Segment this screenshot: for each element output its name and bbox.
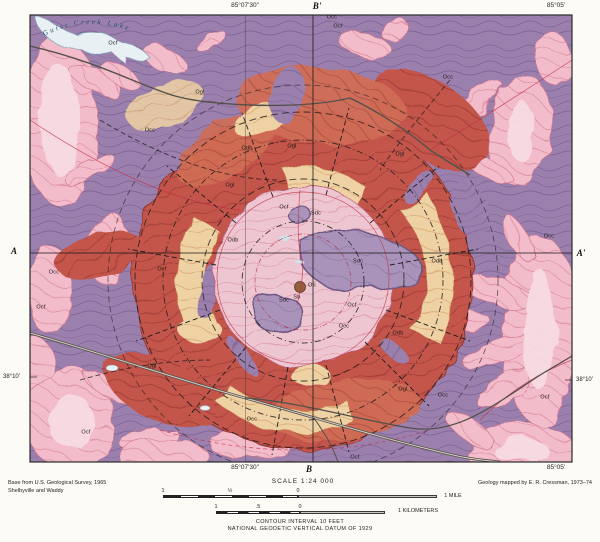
km-bar-zero-tick: 0 <box>298 504 301 510</box>
mile-bar-half-tick: ½ <box>228 488 233 494</box>
map-unit-label: Ocf <box>81 430 90 436</box>
map-unit-label: Oti <box>308 283 316 289</box>
km-bar-half-tick: .5 <box>256 504 261 510</box>
map-unit-label: Occ <box>247 417 257 423</box>
bottom-longitude-west: 85°07'30" <box>231 465 259 472</box>
map-unit-label: Occ <box>145 128 155 134</box>
top-longitude-west: 85°07'30" <box>231 3 259 10</box>
section-line-a-prime-label: A' <box>577 248 586 258</box>
map-unit-label: Occ <box>49 270 59 276</box>
map-unit-label: Ocf <box>157 267 166 273</box>
top-longitude-east: 85°05' <box>547 3 565 10</box>
km-bar-left-tick: 1 <box>214 504 217 510</box>
map-unit-label: Ocf <box>347 303 356 309</box>
base-credit-line1: Base from U.S. Geological Survey, 1965 <box>8 479 106 487</box>
mile-bar-segmented <box>163 495 298 498</box>
left-latitude: 38°10' <box>3 374 20 380</box>
map-unit-label: Ocf <box>350 455 359 461</box>
map-unit-label: Occ <box>339 324 349 330</box>
map-unit-label: Sdc <box>353 259 363 265</box>
mile-bar-zero-tick: 0 <box>296 488 299 494</box>
mile-bar-unit-label: 1 MILE <box>444 493 461 499</box>
map-unit-label: Ogl <box>395 152 404 158</box>
geologic-map-sheet: Guist Creek Lake OccOglOdbOglOccOccOcfOc… <box>0 0 600 542</box>
map-unit-label: Occ <box>438 393 448 399</box>
km-bar-solid <box>300 511 385 514</box>
map-unit-label: Ocf <box>279 205 288 211</box>
map-unit-label: Occ <box>544 234 554 240</box>
map-unit-label: Ogl <box>398 387 407 393</box>
map-unit-label: Odb <box>432 259 443 265</box>
bottom-longitude-east: 85°05' <box>547 465 565 472</box>
section-line-b-label: B <box>306 464 312 474</box>
km-bar-segmented <box>216 511 300 514</box>
scale-title: SCALE 1:24 000 <box>272 478 334 485</box>
contour-interval-note: CONTOUR INTERVAL 10 FEET <box>256 519 344 525</box>
pond <box>200 406 210 411</box>
km-bar-unit-label: 1 KILOMETERS <box>398 508 438 514</box>
map-unit-label: Sdc <box>279 298 289 304</box>
map-unit-label: Odb <box>242 146 253 152</box>
mile-bar-solid <box>298 495 437 498</box>
base-credit: Base from U.S. Geological Survey, 1965 S… <box>8 479 106 496</box>
map-unit-label: Odb <box>393 331 404 337</box>
map-unit-label: Odb <box>228 238 239 244</box>
map-unit-label: Ocf <box>108 41 117 47</box>
map-unit-label: Ocf <box>36 305 45 311</box>
map-unit-label: Occ <box>443 75 453 81</box>
map-unit-label: Ogl <box>195 90 204 96</box>
geology-credit: Geology mapped by E. R. Cressman, 1973–7… <box>478 479 592 487</box>
right-latitude: 38°10' <box>576 377 593 383</box>
section-line-a-label: A <box>11 246 17 256</box>
map-unit-label: Ogl <box>147 364 156 370</box>
map-unit-label: Occ <box>327 15 337 21</box>
map-unit-label: Ogl <box>225 183 234 189</box>
map-canvas: Guist Creek Lake <box>0 0 600 542</box>
map-unit-label: Ogl <box>287 144 296 150</box>
section-line-b-prime-label: B' <box>313 1 322 11</box>
datum-note: NATIONAL GEODETIC VERTICAL DATUM OF 1929 <box>228 526 373 532</box>
map-unit-label: Sb <box>293 295 300 301</box>
map-unit-label: Ocf <box>333 24 342 30</box>
base-credit-line2: Shelbyville and Waddy <box>8 487 106 495</box>
pond <box>106 365 118 371</box>
mile-bar-left-tick: 1 <box>161 488 164 494</box>
map-unit-label: Ocf <box>540 395 549 401</box>
map-unit-label: Sdc <box>311 211 321 217</box>
